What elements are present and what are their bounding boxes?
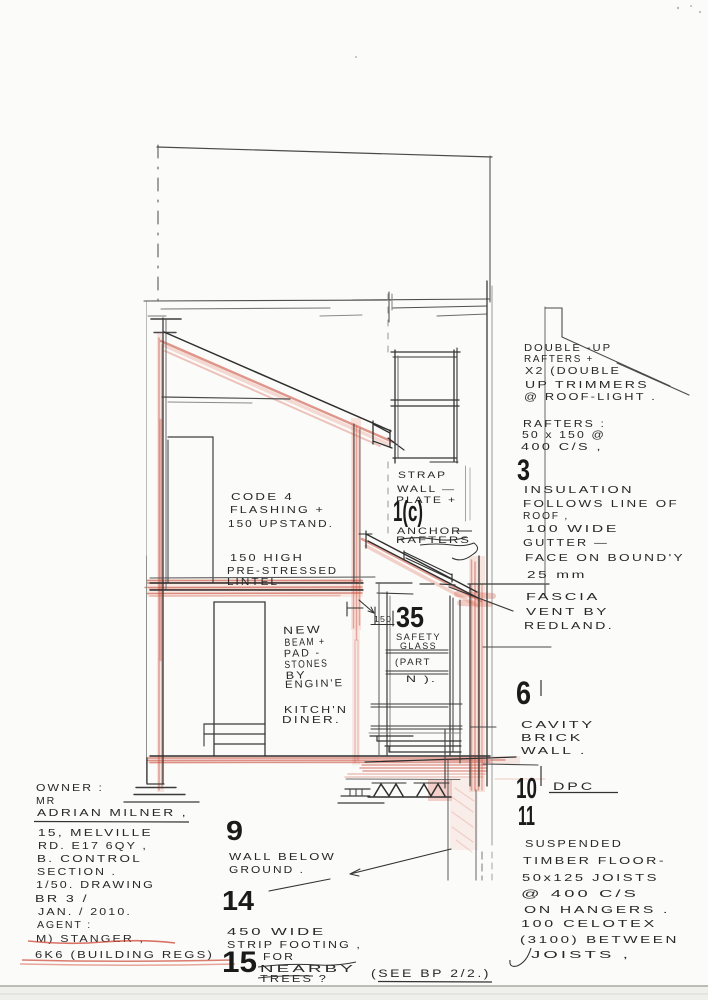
svg-text:FOLLOWS LINE OF: FOLLOWS LINE OF <box>523 498 679 510</box>
svg-text:BRICK: BRICK <box>521 732 583 744</box>
svg-text:N ).: N ). <box>406 674 437 685</box>
svg-text:50x125 JOISTS: 50x125 JOISTS <box>522 872 659 884</box>
svg-text:SUSPENDED: SUSPENDED <box>525 838 623 850</box>
svg-text:CAVITY: CAVITY <box>521 719 595 731</box>
svg-text:(SEE BP 2/2.): (SEE BP 2/2.) <box>371 968 491 980</box>
svg-text:15: 15 <box>222 946 257 979</box>
svg-text:VENT BY: VENT BY <box>526 606 609 618</box>
svg-text:X2 (DOUBLE: X2 (DOUBLE <box>525 365 621 377</box>
svg-text:GLASS: GLASS <box>400 641 437 652</box>
svg-text:BR 3 /: BR 3 / <box>35 893 89 905</box>
svg-text:1/50. DRAWING: 1/50. DRAWING <box>36 879 155 891</box>
svg-text:LINTEL: LINTEL <box>227 576 279 588</box>
svg-text:GROUND .: GROUND . <box>229 864 305 876</box>
svg-text:MR: MR <box>36 795 56 807</box>
svg-text:6K6 (BUILDING REGS): 6K6 (BUILDING REGS) <box>35 949 214 961</box>
svg-text:400 C/S ,: 400 C/S , <box>521 441 603 453</box>
svg-text:ADRIAN MILNER ,: ADRIAN MILNER , <box>37 807 188 819</box>
svg-text:FASCIA: FASCIA <box>526 591 600 603</box>
svg-text:(3100) BETWEEN: (3100) BETWEEN <box>520 934 679 946</box>
svg-text:35: 35 <box>396 602 424 634</box>
svg-text:@ ROOF-LIGHT .: @ ROOF-LIGHT . <box>524 391 657 403</box>
svg-text:ROOF ,: ROOF , <box>523 510 569 522</box>
svg-text:GUTTER —: GUTTER — <box>523 537 609 549</box>
svg-text:DINER.: DINER. <box>282 714 341 726</box>
svg-text:RD. E17 6QY ,: RD. E17 6QY , <box>38 840 148 852</box>
svg-text:100 CELOTEX: 100 CELOTEX <box>521 918 657 930</box>
svg-text:100 WIDE: 100 WIDE <box>526 523 619 535</box>
svg-text:SECTION .: SECTION . <box>37 866 117 878</box>
svg-text:50 x 150 @: 50 x 150 @ <box>522 429 606 441</box>
svg-text:RAFTERS +: RAFTERS + <box>524 353 594 365</box>
svg-text:WALL BELOW: WALL BELOW <box>229 851 336 863</box>
svg-text:CODE 4: CODE 4 <box>231 491 294 503</box>
svg-text:FLASHING +: FLASHING + <box>230 504 325 516</box>
svg-text:FOR: FOR <box>263 951 295 963</box>
svg-text:25 mm: 25 mm <box>527 569 587 581</box>
svg-text:150 UPSTAND.: 150 UPSTAND. <box>228 518 334 530</box>
svg-text:9: 9 <box>226 815 243 846</box>
svg-text:14: 14 <box>222 885 254 916</box>
svg-text:WALL —: WALL — <box>397 484 456 495</box>
svg-text:DPC: DPC <box>553 781 595 793</box>
svg-text:REDLAND.: REDLAND. <box>524 620 614 632</box>
svg-text:OWNER :: OWNER : <box>36 782 104 794</box>
svg-text:150: 150 <box>374 614 392 624</box>
svg-text:3: 3 <box>517 454 530 487</box>
svg-text:1(c): 1(c) <box>393 496 423 528</box>
svg-text:6: 6 <box>516 675 531 711</box>
svg-text:AGENT :: AGENT : <box>37 919 92 931</box>
svg-text:INSULATION: INSULATION <box>524 484 634 496</box>
svg-text:11: 11 <box>518 800 535 831</box>
svg-text:TIMBER FLOOR-: TIMBER FLOOR- <box>523 855 666 867</box>
svg-text:450 WIDE: 450 WIDE <box>227 926 326 938</box>
svg-text:FACE ON BOUND'Y: FACE ON BOUND'Y <box>525 552 685 564</box>
svg-text:(PART: (PART <box>395 657 431 668</box>
svg-text:ENGIN'E: ENGIN'E <box>285 677 344 691</box>
svg-text:WALL .: WALL . <box>521 745 587 757</box>
svg-text:15, MELVILLE: 15, MELVILLE <box>38 827 153 839</box>
svg-text:UP TRIMMERS: UP TRIMMERS <box>525 379 649 391</box>
svg-text:JOISTS ,: JOISTS , <box>531 949 631 961</box>
svg-text:JAN. / 2010.: JAN. / 2010. <box>38 906 132 918</box>
svg-text:@ 400 C/S: @ 400 C/S <box>521 888 639 900</box>
svg-text:TREES ?: TREES ? <box>260 973 328 985</box>
svg-text:STRAP: STRAP <box>398 470 447 481</box>
svg-text:ON HANGERS .: ON HANGERS . <box>524 904 670 916</box>
svg-text:B. CONTROL: B. CONTROL <box>37 853 142 865</box>
svg-text:150 HIGH: 150 HIGH <box>230 552 304 564</box>
